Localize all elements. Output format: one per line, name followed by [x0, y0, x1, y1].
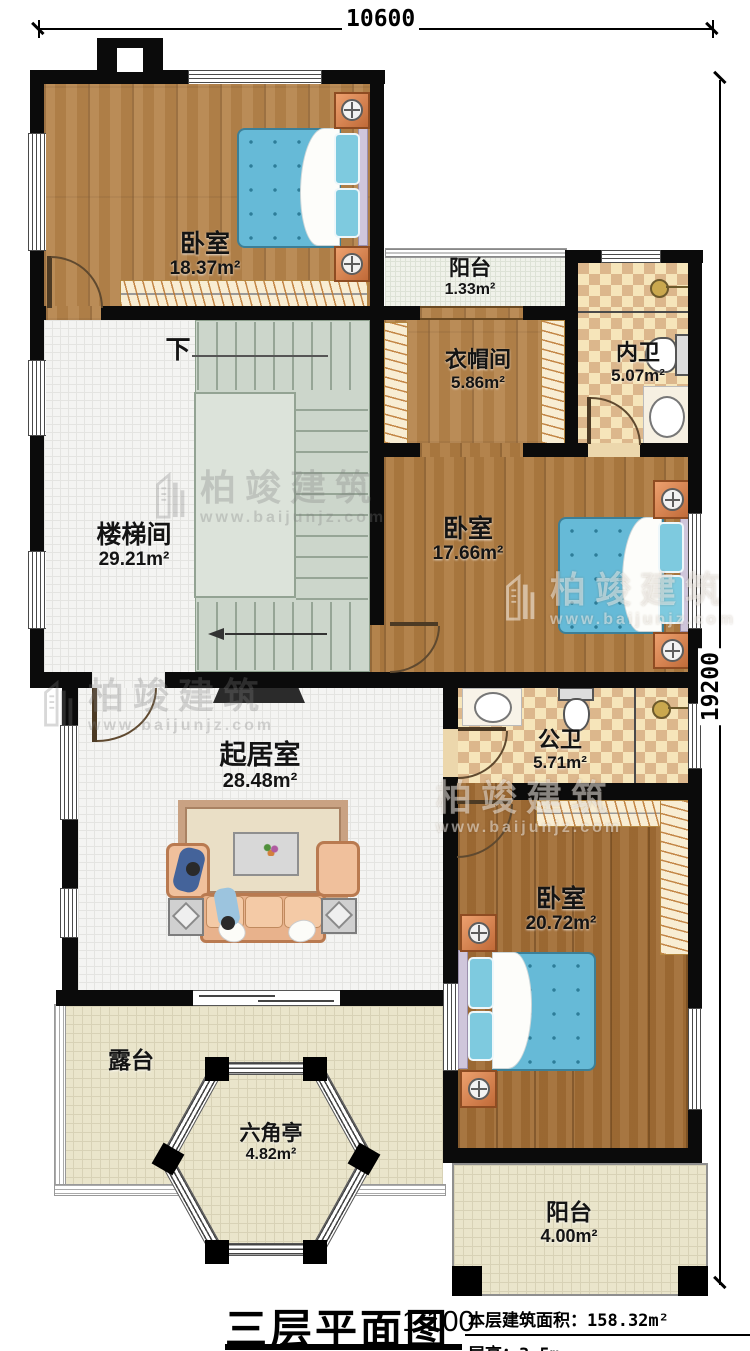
- wardrobe: [120, 280, 368, 308]
- room-label-bedroom-bottom: 卧室 20.72m²: [526, 885, 597, 934]
- room-area: 18.37m²: [170, 258, 241, 279]
- nightstand: [653, 480, 691, 519]
- room-label-stairwell: 楼梯间 29.21m²: [96, 521, 171, 570]
- room-name: 起居室: [220, 740, 301, 770]
- room-area: 17.66m²: [433, 543, 504, 564]
- room-area: 29.21m²: [96, 549, 171, 570]
- room-label-living: 起居室 28.48m²: [220, 740, 301, 793]
- room-area: 5.07m²: [611, 366, 665, 385]
- room-label-balcony-bottom: 阳台 4.00m²: [540, 1200, 597, 1246]
- table-flowers: [262, 842, 280, 856]
- pavilion-post: [303, 1057, 327, 1081]
- sofa-cushion: [245, 896, 283, 928]
- pavilion-post: [205, 1240, 229, 1264]
- shower-arm: [668, 707, 688, 709]
- room-label-pavilion: 六角亭 4.82m²: [240, 1122, 303, 1163]
- bed-pillow: [468, 1011, 494, 1061]
- sink-icon: [649, 396, 685, 438]
- wall: [370, 70, 384, 688]
- shower-arm: [666, 286, 688, 288]
- room-area: 4.00m²: [540, 1226, 597, 1246]
- bed-pillow: [658, 522, 684, 573]
- window: [601, 250, 661, 263]
- bed-pillow: [468, 957, 494, 1009]
- room-name: 卧室: [433, 515, 504, 543]
- window: [28, 133, 46, 251]
- shower-icon: [650, 279, 669, 298]
- drawing-scale: 1:100: [402, 1306, 475, 1339]
- armchair: [316, 841, 360, 897]
- door-opening: [370, 625, 384, 672]
- room-name: 楼梯间: [96, 521, 171, 549]
- room-name: 衣帽间: [445, 348, 511, 373]
- stair-landing: [194, 392, 296, 598]
- cased-opening: [420, 443, 523, 457]
- window: [28, 551, 46, 629]
- note-divider: [465, 1334, 750, 1336]
- nightstand: [334, 246, 370, 282]
- window: [60, 725, 78, 820]
- shower-divider: [578, 311, 688, 313]
- window: [28, 360, 46, 436]
- cloakroom-closet-right: [541, 320, 565, 444]
- room-area: 5.86m²: [445, 373, 511, 392]
- room-name: 卧室: [526, 885, 597, 913]
- wall: [565, 250, 578, 457]
- window: [688, 1008, 702, 1110]
- pavilion-post: [303, 1240, 327, 1264]
- dimension-height: 19200: [698, 648, 724, 725]
- room-label-terrace: 露台: [108, 1048, 154, 1074]
- stair-treads-right: [296, 394, 368, 600]
- room-name: 公卫: [533, 728, 587, 753]
- stair-direction-arrow: [208, 628, 224, 640]
- room-area: 20.72m²: [526, 913, 597, 934]
- balcony-post: [452, 1266, 482, 1296]
- room-name: 露台: [108, 1048, 154, 1074]
- wardrobe: [536, 800, 664, 827]
- shower-icon: [652, 700, 671, 719]
- title-underline-thick: [225, 1344, 462, 1350]
- floor-area-note: 本层建筑面积：158.32m²: [468, 1306, 669, 1331]
- room-label-balcony-top: 阳台 1.33m²: [445, 257, 496, 298]
- tv-console: [213, 688, 305, 703]
- bed-pillow: [334, 188, 360, 238]
- room-label-bedroom-middle: 卧室 17.66m²: [433, 515, 504, 564]
- window: [443, 983, 458, 1071]
- door-opening: [443, 729, 458, 777]
- bath-divider: [634, 686, 636, 783]
- person-head: [186, 862, 200, 876]
- nightstand: [460, 914, 497, 952]
- window: [60, 888, 78, 938]
- door-opening: [46, 306, 101, 320]
- room-name: 六角亭: [240, 1122, 303, 1146]
- wall: [443, 1148, 702, 1163]
- room-label-public-bath: 公卫 5.71m²: [533, 728, 587, 772]
- nightstand: [334, 92, 370, 129]
- room-label-bedroom-top: 卧室 18.37m²: [170, 230, 241, 279]
- balcony-post: [678, 1266, 708, 1296]
- floor-height-note: 层高：3.5m: [468, 1340, 560, 1351]
- dimension-width: 10600: [342, 6, 419, 32]
- cased-opening: [420, 306, 523, 320]
- bed-pillow: [334, 133, 360, 185]
- cloakroom-closet-left: [384, 322, 408, 444]
- room-label-ensuite: 内卫 5.07m²: [611, 341, 665, 385]
- sink-icon: [474, 692, 512, 723]
- room-name: 阳台: [540, 1200, 597, 1226]
- room-label-cloakroom: 衣帽间 5.86m²: [445, 348, 511, 392]
- pavilion-post: [205, 1057, 229, 1081]
- floor-plan: 卧室 18.37m² 阳台 1.33m² 衣帽间 5.86m² 内卫 5.07m…: [0, 0, 750, 1351]
- pavilion-rail-top: [226, 1062, 308, 1075]
- room-name: 阳台: [445, 257, 496, 281]
- sliding-door: [193, 990, 340, 1006]
- door-opening: [457, 783, 512, 800]
- chimney-flue: [117, 48, 143, 72]
- window: [688, 513, 702, 629]
- room-area: 5.71m²: [533, 753, 587, 772]
- door-opening: [588, 443, 640, 457]
- bed-headboard: [458, 950, 468, 1069]
- nightstand: [653, 632, 691, 669]
- window: [188, 70, 322, 84]
- room-name: 卧室: [170, 230, 241, 258]
- stair-direction-line: [225, 633, 327, 635]
- room-area: 1.33m²: [445, 281, 496, 299]
- room-area: 4.82m²: [240, 1146, 303, 1164]
- person-head: [221, 916, 235, 930]
- nightstand: [460, 1070, 497, 1108]
- door-opening: [92, 672, 165, 688]
- stair-down-label: 下: [165, 336, 190, 364]
- wardrobe: [660, 800, 690, 955]
- pavilion-rail-bottom: [226, 1243, 308, 1256]
- terrace-rail-left: [54, 1004, 66, 1196]
- room-name: 内卫: [611, 341, 665, 366]
- stair-rail-line: [192, 355, 328, 357]
- room-area: 28.48m²: [220, 770, 301, 792]
- bed-pillow: [658, 575, 684, 624]
